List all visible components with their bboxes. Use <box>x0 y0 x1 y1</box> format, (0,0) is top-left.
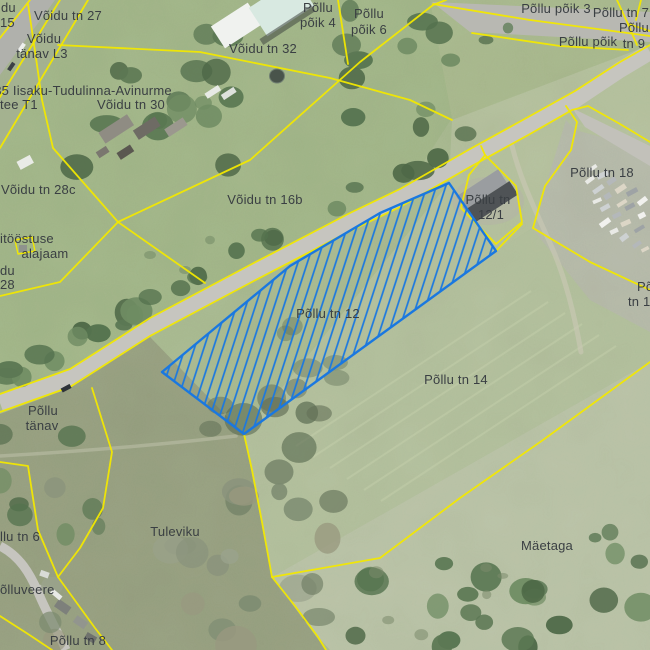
tree-blob <box>126 305 143 326</box>
map-label-frag-voidu-du-top: du <box>1 0 16 15</box>
map-label-frag-tn-28: 28 <box>0 277 15 292</box>
map-label-voidu-tanav-l3-line2: tänav L3 <box>16 46 67 61</box>
map-label-pollu-tn-12: Põllu tn 12 <box>296 306 360 321</box>
tree-blob <box>482 590 491 599</box>
tree-blob <box>282 432 317 463</box>
tree-blob <box>82 498 103 520</box>
tree-blob <box>57 523 75 546</box>
map-label-pollu-tanav-line1: Põllu <box>28 403 58 418</box>
tree-blob <box>475 615 493 630</box>
tree-blob <box>7 504 33 527</box>
tree-blob <box>251 229 268 242</box>
map-label-alajaam: alajaam <box>22 246 69 261</box>
tree-blob <box>39 612 61 634</box>
tree-blob <box>271 483 287 500</box>
map-label-frag-pollu-tn-1x-line1: Põ <box>637 279 650 294</box>
map-label-frag-voidu-du-left: du <box>0 263 15 278</box>
map-label-frag-pollu-tn-1x-line2: tn 1 <box>628 294 650 309</box>
tree-blob <box>479 36 494 45</box>
tree-blob <box>205 236 215 245</box>
map-label-pollu-tn-12-1-line1: Põllu tn <box>466 192 511 207</box>
tree-blob <box>44 477 66 498</box>
tree-blob <box>229 487 259 506</box>
tree-blob <box>315 523 341 554</box>
tree-blob <box>427 594 449 619</box>
tree-blob <box>171 280 190 296</box>
tree-blob <box>119 67 142 83</box>
tree-blob <box>631 555 648 569</box>
map-label-tee-35-line2: tee T1 <box>0 97 38 112</box>
tree-blob <box>503 23 513 34</box>
tree-blob <box>68 327 88 347</box>
tree-blob <box>605 543 624 565</box>
tree-blob <box>346 182 364 193</box>
tree-blob <box>441 54 460 67</box>
map-viewport[interactable]: du15Võidu tn 27Võidutänav L335 Iisaku-Tu… <box>0 0 650 650</box>
tree-blob <box>414 629 428 640</box>
tree-blob <box>196 105 222 128</box>
tree-blob <box>199 421 221 437</box>
map-label-pollu-tn-14: Põllu tn 14 <box>424 372 488 387</box>
tree-blob <box>215 153 241 176</box>
map-label-pollu-tn-12-1-line2: 12/1 <box>478 207 504 222</box>
map-label-pollu-poik-6-line1: Põllu <box>354 6 384 21</box>
map-label-frag-polluveere: õlluveere <box>0 582 55 597</box>
map-label-tuleviku: Tuleviku <box>150 524 200 539</box>
map-label-pollu-poik-4-line1: Põllu <box>303 0 333 15</box>
tree-blob <box>602 524 619 541</box>
map-label-pollu-tn-8: Põllu tn 8 <box>50 633 106 648</box>
tree-blob <box>176 537 209 568</box>
tree-blob <box>435 557 453 570</box>
tree-blob <box>346 627 366 645</box>
tree-blob <box>228 242 245 259</box>
map-label-voidu-tanav-l3-line1: Võidu <box>27 31 61 46</box>
map-label-frag-pollu-tn-9-line2: tn 9 <box>623 36 645 51</box>
tree-blob <box>265 459 294 484</box>
map-label-pollu-poik-3: Põllu põik 3 <box>521 1 591 16</box>
tree-blob <box>522 580 545 603</box>
map-label-pollu-poik-4-line2: põik 4 <box>300 15 336 30</box>
map-label-frag-pollu-tn-9-line1: Põllu <box>619 20 649 35</box>
tree-blob <box>328 201 347 217</box>
tree-blob <box>393 164 415 183</box>
tree-blob <box>457 587 478 602</box>
map-label-pollu-tn-18: Põllu tn 18 <box>570 165 634 180</box>
tree-blob <box>221 549 239 564</box>
map-label-voidu-tn-28c: Võidu tn 28c <box>1 182 76 197</box>
map-label-voidu-tn-16b: Võidu tn 16b <box>227 192 302 207</box>
map-label-voidu-tn-32: Võidu tn 32 <box>229 41 297 56</box>
tree-blob <box>284 498 313 522</box>
tree-blob <box>92 518 105 535</box>
tree-blob <box>480 563 492 572</box>
tree-blob <box>590 588 619 613</box>
tree-blob <box>301 573 323 595</box>
map-label-tee-35-line1: 35 Iisaku-Tudulinna-Avinurme <box>0 83 172 98</box>
map-label-frag-pollu-tn-6: llu tn 6 <box>0 529 40 544</box>
tree-blob <box>546 616 573 635</box>
tree-blob <box>319 490 348 513</box>
tree-blob <box>589 533 602 543</box>
pond <box>270 69 285 83</box>
map-label-voidu-tn-27: Võidu tn 27 <box>34 8 102 23</box>
tree-blob <box>307 405 332 421</box>
tree-blob <box>239 595 262 611</box>
tree-blob <box>497 573 508 579</box>
tree-blob <box>382 616 394 624</box>
tree-blob <box>369 566 384 578</box>
tree-blob <box>144 251 156 259</box>
tree-blob <box>24 345 54 365</box>
map-label-frag-itoostuse: itööstuse <box>0 231 54 246</box>
tree-blob <box>455 126 477 141</box>
tree-blob <box>58 426 86 447</box>
map-label-maetaga: Mäetaga <box>521 538 574 553</box>
map-label-pollu-poik-street: Põllu põik <box>559 34 618 49</box>
tree-blob <box>427 148 449 168</box>
tree-blob <box>202 59 231 86</box>
map-label-voidu-tn-30: Võidu tn 30 <box>97 97 165 112</box>
tree-blob <box>181 592 205 615</box>
map-label-pollu-poik-6-line2: põik 6 <box>351 22 387 37</box>
tree-blob <box>86 324 111 342</box>
tree-blob <box>341 108 365 126</box>
map-label-pollu-tanav-line2: tänav <box>26 418 59 433</box>
tree-blob <box>139 289 162 305</box>
map-label-pollu-tn-7: Põllu tn 7 <box>593 5 649 20</box>
map-canvas[interactable]: du15Võidu tn 27Võidutänav L335 Iisaku-Tu… <box>0 0 650 650</box>
tree-blob <box>397 38 417 55</box>
map-label-frag-tn-15: 15 <box>0 15 15 30</box>
tree-blob <box>413 117 429 137</box>
